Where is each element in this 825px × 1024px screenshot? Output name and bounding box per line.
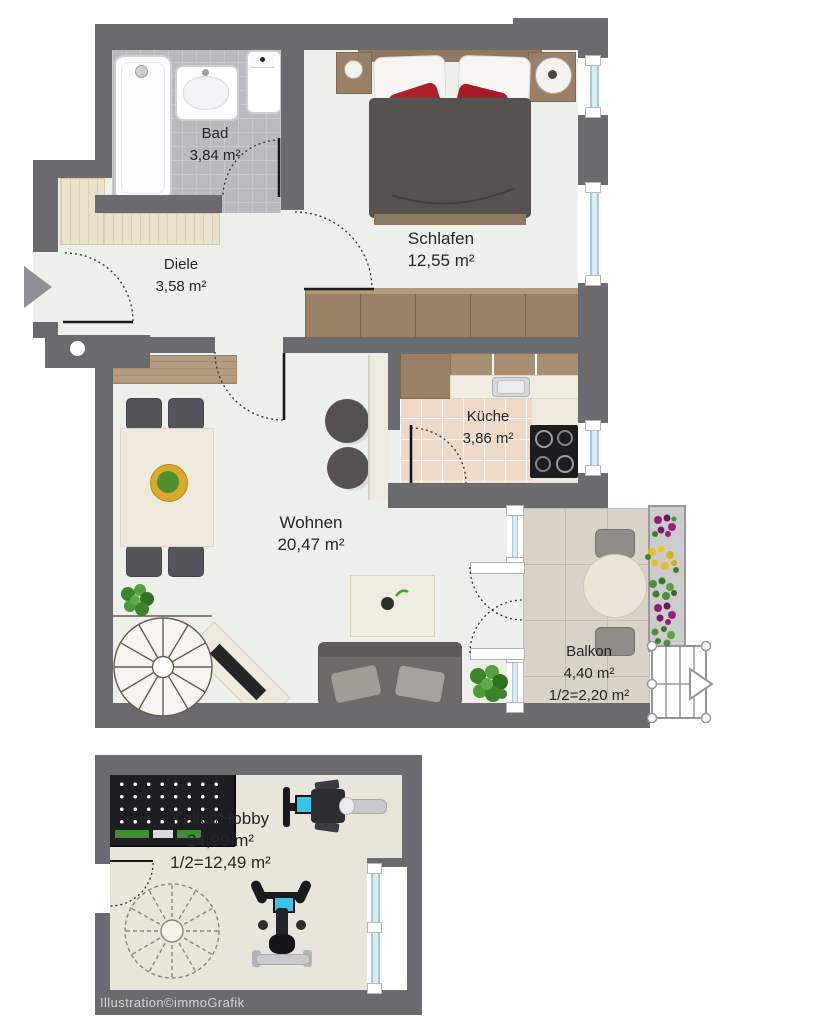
bathtub	[114, 55, 172, 201]
sofa	[318, 642, 462, 706]
room-label-kueche: Küche 3,86 m²	[428, 406, 548, 450]
window-frame	[585, 107, 601, 118]
room-name: Diele	[131, 254, 231, 276]
sink-basin	[183, 76, 229, 110]
toilet-button	[260, 57, 265, 62]
kitchen-corner-cabinet	[400, 353, 452, 399]
window-frame	[367, 983, 382, 994]
room-area: 12,55 m²	[381, 250, 501, 272]
room-name: Wohnen	[251, 512, 371, 534]
bowl-greens	[157, 471, 179, 493]
room-area: 20,47 m²	[251, 534, 371, 556]
window-frame	[367, 922, 382, 933]
window-frame	[367, 863, 382, 874]
window-glass	[512, 514, 518, 558]
room-area: 24,99 m²	[128, 830, 313, 852]
sofa-cushion	[330, 665, 381, 704]
stairs-direction-arrow	[690, 669, 712, 699]
window-frame	[585, 275, 601, 286]
bike-base	[256, 954, 310, 965]
wall	[578, 283, 608, 423]
bathtub-basin	[121, 62, 165, 194]
floor-plan: Bad 3,84 m² Diele 3,58 m² Schlafen 12,55…	[0, 0, 825, 1024]
window-frame	[585, 420, 601, 431]
bike-pedal	[296, 920, 306, 930]
window	[507, 660, 523, 706]
room-area: 3,84 m²	[165, 145, 265, 167]
toilet	[246, 50, 282, 114]
bathtub-faucet	[135, 65, 148, 78]
hallway-wardrobe	[103, 213, 220, 245]
window-frame	[585, 182, 601, 193]
fruit-bowl	[150, 464, 188, 502]
wall	[33, 160, 112, 178]
wall	[95, 24, 513, 50]
bedside-lamp	[344, 60, 363, 79]
stairs-outline	[652, 646, 706, 718]
room-label-wohnen: Wohnen 20,47 m²	[251, 512, 371, 556]
sofa-cushion	[395, 665, 446, 703]
bike-seat	[269, 934, 295, 954]
wall	[402, 775, 422, 858]
wall	[95, 703, 650, 728]
wall	[407, 867, 422, 990]
lamp-center	[548, 70, 557, 79]
room-name: Schlafen	[381, 228, 501, 250]
room-name: Keller/Hobby	[128, 808, 313, 830]
dining-chair	[126, 545, 162, 577]
wall	[33, 178, 58, 252]
flower-box	[648, 505, 686, 652]
room-label-diele: Diele 3,58 m²	[131, 254, 231, 298]
window-frame	[506, 505, 524, 516]
wall	[388, 483, 608, 508]
table-decor	[381, 597, 394, 610]
bedside-lamp	[535, 57, 572, 94]
balcony-door-leaf	[470, 648, 525, 660]
room-label-schlafen: Schlafen 12,55 m²	[381, 228, 501, 272]
wall	[578, 115, 608, 185]
room-name: Balkon	[524, 641, 654, 663]
window-glass	[590, 427, 599, 469]
window	[507, 512, 523, 560]
room-label-balkon: Balkon 4,40 m² 1/2=2,20 m²	[524, 641, 654, 706]
burner	[556, 455, 574, 473]
wall	[513, 18, 608, 50]
sink-bowl	[497, 380, 525, 394]
window-glass	[590, 189, 599, 279]
room-label-bad: Bad 3,84 m²	[165, 123, 265, 167]
wall	[388, 353, 400, 430]
wall	[95, 368, 113, 703]
dining-chair	[126, 398, 162, 430]
basement-window	[367, 867, 407, 990]
wall	[281, 43, 304, 210]
bed-duvet	[369, 98, 531, 218]
pouf	[327, 447, 369, 489]
sink-faucet	[202, 69, 209, 76]
exercise-bike	[252, 876, 312, 978]
room-name: Bad	[165, 123, 265, 145]
kitchen-upper-cabinets	[450, 353, 580, 377]
dining-chair	[168, 398, 204, 430]
bike-pedal	[258, 920, 268, 930]
window-glass	[512, 662, 518, 704]
room-label-keller: Keller/Hobby 24,99 m² 1/2=12,49 m²	[128, 808, 313, 874]
wall	[283, 337, 578, 353]
bed-foot	[374, 214, 526, 225]
bedroom-wardrobe	[305, 288, 582, 344]
entry-threshold	[33, 252, 58, 322]
burner	[535, 456, 551, 472]
room-area: 3,86 m²	[428, 428, 548, 450]
rower-seat	[339, 797, 355, 815]
window	[578, 58, 608, 115]
doorbell	[70, 341, 85, 356]
balcony-table	[583, 554, 647, 618]
balcony-door-leaf	[470, 562, 525, 574]
kitchen-sink	[492, 377, 530, 397]
room-name: Küche	[428, 406, 548, 428]
burner	[557, 430, 573, 446]
window-frame	[585, 465, 601, 476]
wall	[95, 50, 112, 160]
window	[578, 423, 608, 473]
dining-chair	[168, 545, 204, 577]
pouf	[325, 399, 369, 443]
wall	[95, 755, 422, 775]
bathroom-sink	[175, 65, 239, 121]
room-area: 3,58 m²	[131, 276, 231, 298]
balcony-glazing	[507, 508, 523, 706]
window-frame	[585, 55, 601, 66]
room-area: 4,40 m²	[524, 663, 654, 685]
sofa-backrest	[319, 643, 461, 657]
wall	[95, 913, 110, 990]
wall	[95, 775, 110, 864]
window-frame	[506, 702, 524, 713]
room-area-half: 1/2=2,20 m²	[524, 685, 654, 707]
exterior-stairs-icon	[648, 642, 713, 723]
wall	[95, 195, 222, 213]
wall	[95, 337, 215, 353]
room-area-half: 1/2=12,49 m²	[128, 852, 313, 874]
window	[578, 185, 608, 283]
window-glass	[590, 62, 599, 111]
tall-cabinet	[368, 355, 390, 500]
watermark: Illustration©immoGrafik	[100, 995, 244, 1010]
